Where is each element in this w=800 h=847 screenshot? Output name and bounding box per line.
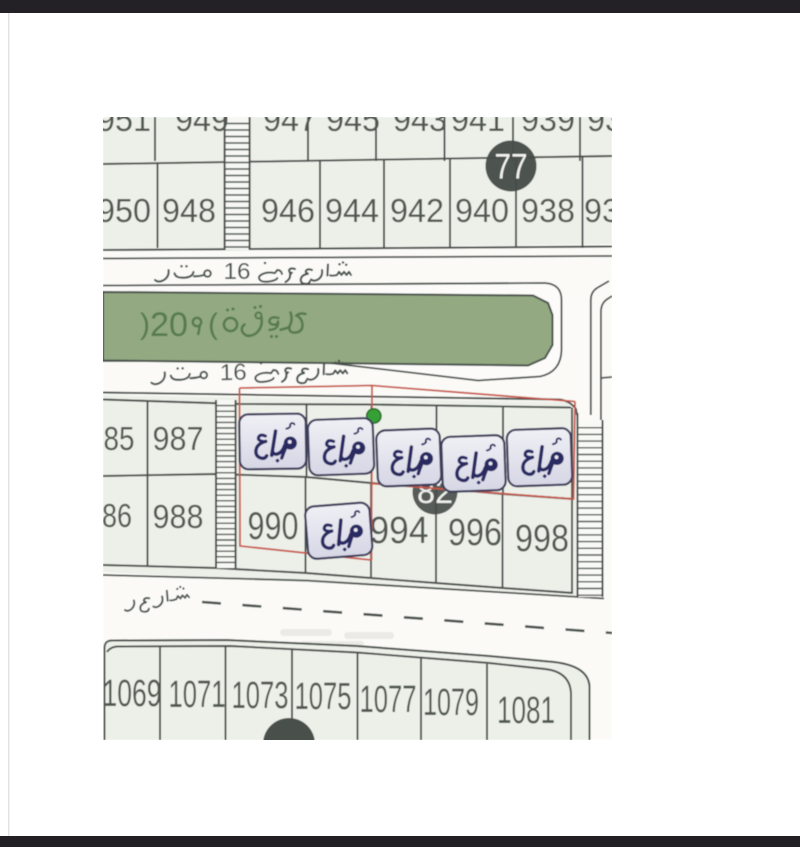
svg-text:20: 20 bbox=[150, 306, 188, 344]
svg-text:1081: 1081 bbox=[497, 690, 555, 732]
svg-text:): ) bbox=[140, 308, 150, 341]
svg-text:948: 948 bbox=[162, 192, 216, 229]
svg-text:1069: 1069 bbox=[103, 673, 162, 715]
svg-text:1073: 1073 bbox=[232, 675, 289, 717]
svg-text:85: 85 bbox=[104, 420, 135, 457]
svg-text:942: 942 bbox=[390, 192, 444, 229]
svg-text:16: 16 bbox=[219, 359, 247, 386]
svg-text:946: 946 bbox=[261, 192, 315, 229]
svg-text:990: 990 bbox=[248, 505, 299, 548]
svg-text:16: 16 bbox=[224, 258, 251, 284]
svg-text:998: 998 bbox=[515, 518, 569, 560]
svg-text:987: 987 bbox=[153, 420, 204, 457]
svg-text:77: 77 bbox=[495, 148, 528, 187]
svg-text:1075: 1075 bbox=[295, 676, 352, 718]
svg-text:1071: 1071 bbox=[169, 674, 226, 716]
svg-text:(: ( bbox=[208, 308, 218, 341]
svg-text:940: 940 bbox=[455, 192, 509, 229]
svg-text:86: 86 bbox=[102, 497, 132, 534]
svg-text:938: 938 bbox=[521, 192, 575, 229]
svg-text:996: 996 bbox=[448, 512, 502, 554]
svg-text:950: 950 bbox=[97, 192, 151, 229]
svg-text:1077: 1077 bbox=[360, 679, 417, 721]
svg-text:944: 944 bbox=[325, 192, 379, 229]
svg-text:988: 988 bbox=[153, 498, 204, 535]
svg-text:994: 994 bbox=[370, 510, 429, 552]
svg-text:1079: 1079 bbox=[423, 682, 479, 724]
